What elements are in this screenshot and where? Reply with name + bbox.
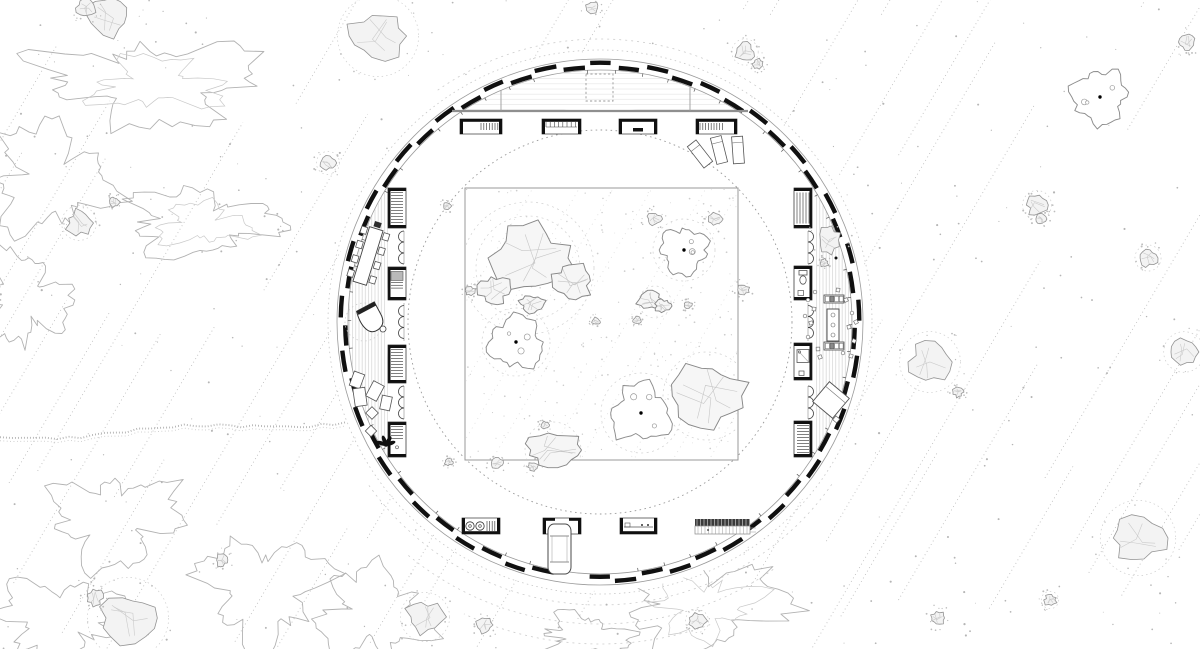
site-plan-figure: Circular pavilion floor plan with zen-ga… [0,0,1200,649]
parked-car [548,524,571,574]
room-shelf_h [388,188,406,228]
block-counter_sink [620,518,657,534]
block-laundry [462,518,500,534]
site-plan-drawing [0,0,1200,649]
block-cell_row [542,119,581,134]
room-shelf_h [794,421,812,457]
block-counter_plain [619,119,657,134]
room-wc [794,266,812,300]
block-counter_hatch_right [460,119,502,134]
room-appliance [388,267,406,300]
block-stairs [695,519,756,534]
room-shelf_h [388,345,406,383]
block-counter_hatch_left [696,119,737,134]
room-shelf_v [794,188,812,228]
room-shower [794,343,812,380]
